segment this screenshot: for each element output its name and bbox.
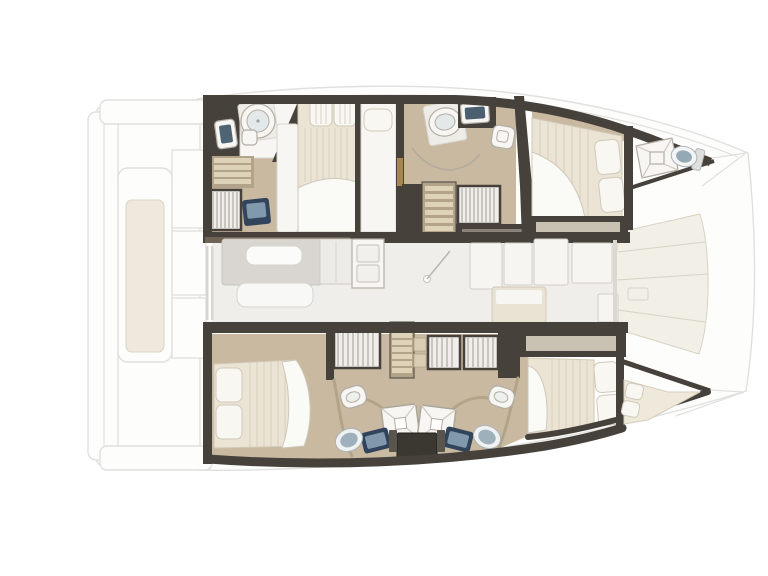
counter-module: [534, 239, 568, 285]
lower-wardrobe-c: [464, 336, 498, 369]
stair-tread: [425, 202, 453, 207]
stair-tread: [392, 354, 412, 359]
saloon-table: [246, 246, 302, 265]
pillow: [624, 382, 644, 400]
aft-glass-door: [211, 246, 214, 320]
stair-tread: [425, 218, 453, 223]
catamaran-floor-plan: [0, 0, 768, 576]
cockpit-lounge-cushion: [126, 200, 164, 352]
upper-aft-wardrobe: [209, 190, 241, 230]
aft-crossbeam-top: [100, 100, 212, 124]
landing-cabinet: [402, 184, 422, 240]
floor-plan-svg: [0, 0, 768, 576]
cabin-door: [397, 158, 403, 186]
console-wing: [437, 430, 445, 452]
stair-tread: [425, 210, 453, 215]
galley-cabinet: [320, 239, 352, 284]
stair-tread: [392, 368, 412, 373]
lower-aft-bed: [214, 360, 310, 448]
saloon: [206, 239, 618, 324]
sink-bowl: [357, 245, 379, 262]
step: [214, 172, 251, 177]
cockpit-seat-3: [172, 298, 206, 358]
step: [214, 165, 251, 170]
pillow: [216, 405, 242, 439]
sink-bowl: [357, 265, 379, 282]
shower-drain: [430, 418, 442, 430]
pillow: [593, 361, 620, 393]
cockpit-seat-2: [172, 231, 206, 295]
upper-aft-vanity: [242, 198, 272, 227]
aft-crossbeam-bottom: [100, 446, 212, 470]
galley-counters: [470, 239, 612, 289]
bow-hatch-center: [650, 152, 664, 164]
shower-drain: [256, 119, 259, 122]
lower-wardrobe-a: [334, 330, 380, 368]
mid-sink-basin: [465, 106, 486, 119]
bathroom-sink-basin: [219, 124, 233, 143]
saloon-bench: [237, 283, 313, 307]
counter-module: [470, 243, 502, 289]
stair-tread: [392, 333, 412, 338]
upper-aft-bulkhead: [203, 95, 212, 243]
wardrobe-louvers: [213, 192, 237, 228]
berth-pillow: [364, 109, 392, 131]
upper-fwd-bed: [528, 118, 628, 243]
stair-tread: [392, 347, 412, 352]
galley-island: [492, 287, 546, 323]
counter-module: [572, 243, 612, 283]
step-block: [414, 354, 426, 367]
stern-deck: [88, 100, 212, 470]
pillow: [598, 177, 625, 213]
wardrobe-door: [428, 336, 460, 369]
vanity-basin: [246, 202, 266, 219]
upper-aft-steps: [212, 156, 254, 188]
bathroom-toilet: [242, 130, 257, 145]
berth-divider-wall: [355, 96, 361, 232]
aft-glass-door: [206, 246, 209, 320]
lower-fwd-shelf: [526, 336, 616, 351]
pillow: [621, 400, 641, 418]
cockpit-seat-1: [172, 150, 206, 228]
lower-aft-bulkhead: [203, 322, 212, 464]
pillow: [216, 368, 242, 402]
stair-tread: [425, 226, 453, 231]
mid-toilet: [490, 124, 515, 149]
bed-side-seat: [277, 124, 298, 232]
upper-bow-wall: [624, 126, 633, 230]
duvet: [298, 179, 356, 232]
stair-tread: [425, 186, 453, 191]
console-wing: [389, 430, 397, 452]
step-block: [414, 338, 426, 351]
galley-sink-unit: [352, 239, 384, 288]
island-top: [496, 290, 542, 304]
stair-tread: [392, 340, 412, 345]
step: [214, 179, 251, 184]
upper-single-berth: [361, 97, 396, 232]
counter-module: [504, 243, 532, 285]
stair-tread: [425, 194, 453, 199]
pillow: [594, 139, 621, 175]
swim-platform: [88, 112, 118, 460]
bathroom-fwd-wall: [498, 330, 520, 378]
stair-tread: [392, 361, 412, 366]
step: [214, 158, 251, 163]
windshield: [613, 240, 617, 324]
shower-drain: [394, 417, 406, 429]
lower-wardrobe-b: [428, 336, 460, 369]
